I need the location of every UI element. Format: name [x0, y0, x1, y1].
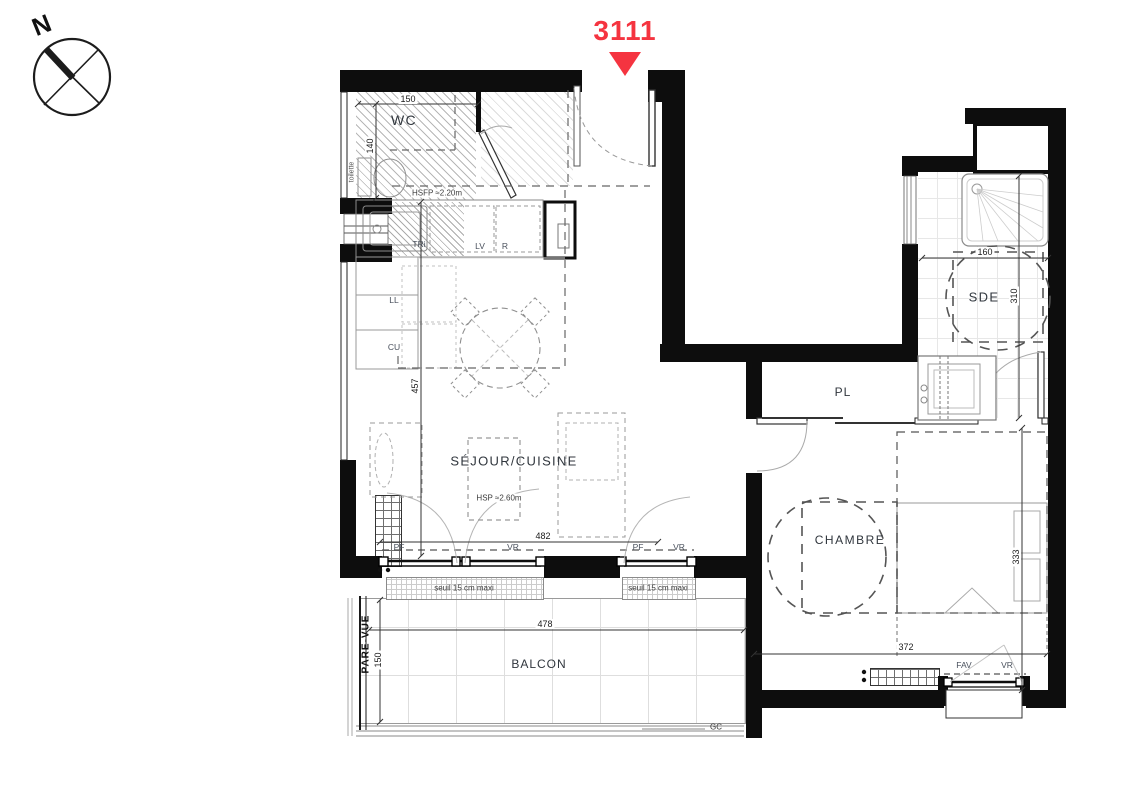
toilet-fixture: [358, 158, 406, 197]
room-label-wc: WC: [391, 112, 417, 128]
window1-sill-note: seuil 15 cm maxi: [433, 584, 495, 593]
kitchen-label-unit: CU: [388, 342, 400, 352]
room-label-sejour: SÉJOUR/CUISINE: [450, 454, 577, 469]
compass-rose: [34, 39, 110, 115]
dim-balcony-width: 478: [535, 619, 554, 629]
dim-balcony-depth: 150: [373, 650, 383, 669]
kitchen-label-washer: LL: [389, 295, 398, 305]
window1-pf-label: PF: [394, 542, 405, 552]
kitchen-label-fridge: R: [502, 241, 508, 251]
window2-pf-label: PF: [633, 542, 644, 552]
bed: [897, 503, 1047, 613]
window1-vr-label: VR: [507, 542, 519, 552]
room-label-placard: PL: [835, 385, 852, 399]
chambre-window-vr-label: VR: [1001, 660, 1013, 670]
vanity-unit: [918, 356, 996, 420]
room-label-balcon: BALCON: [511, 657, 566, 671]
ceiling-note-sejour: HSP ≈2.60m: [475, 494, 522, 503]
chambre-window-fav-label: FAV: [956, 660, 971, 670]
dining-table: [451, 298, 549, 398]
balcony-screen-label: PARE-VUE: [361, 615, 372, 674]
dim-sde-width: 160: [975, 247, 994, 257]
chambre-window: [944, 645, 1026, 718]
dim-wc-depth: 140: [365, 136, 375, 155]
dim-chambre-depth: 333: [1011, 547, 1021, 566]
window2-sill-note: seuil 15 cm maxi: [627, 584, 689, 593]
room-label-chambre: CHAMBRE: [815, 533, 886, 547]
ceiling-note-wc: HSFP ≈2.20m: [411, 189, 463, 198]
floor-plan: N 3111 WC 150 140 toilette HSFP ≈2.20m T…: [0, 0, 1127, 800]
dim-wc-width: 150: [398, 94, 417, 104]
sde-window: [904, 176, 916, 244]
kitchen-label-dishwasher: LV: [475, 241, 485, 251]
unit-marker-triangle-icon: [609, 52, 641, 76]
toilet-label: toilette: [349, 162, 356, 183]
wc-door: [479, 126, 516, 198]
room-label-sde: SDE: [969, 290, 1000, 305]
dim-sejour-width: 482: [533, 531, 552, 541]
sejour-window-2: [617, 497, 696, 566]
dim-sejour-depth: 457: [410, 376, 420, 395]
dim-chambre-width: 372: [896, 642, 915, 652]
balcony-drain-label: GC: [709, 723, 723, 732]
window2-vr-label: VR: [673, 542, 685, 552]
sejour-furniture: [370, 413, 625, 537]
chambre-door: [757, 418, 807, 471]
plan-linework: [0, 0, 1127, 800]
unit-number: 3111: [593, 15, 656, 47]
kitchen-label-sink: TRi: [412, 239, 425, 249]
dim-sde-depth: 310: [1009, 286, 1019, 305]
shower-tray: [962, 174, 1048, 246]
entrance-door: [574, 86, 655, 166]
